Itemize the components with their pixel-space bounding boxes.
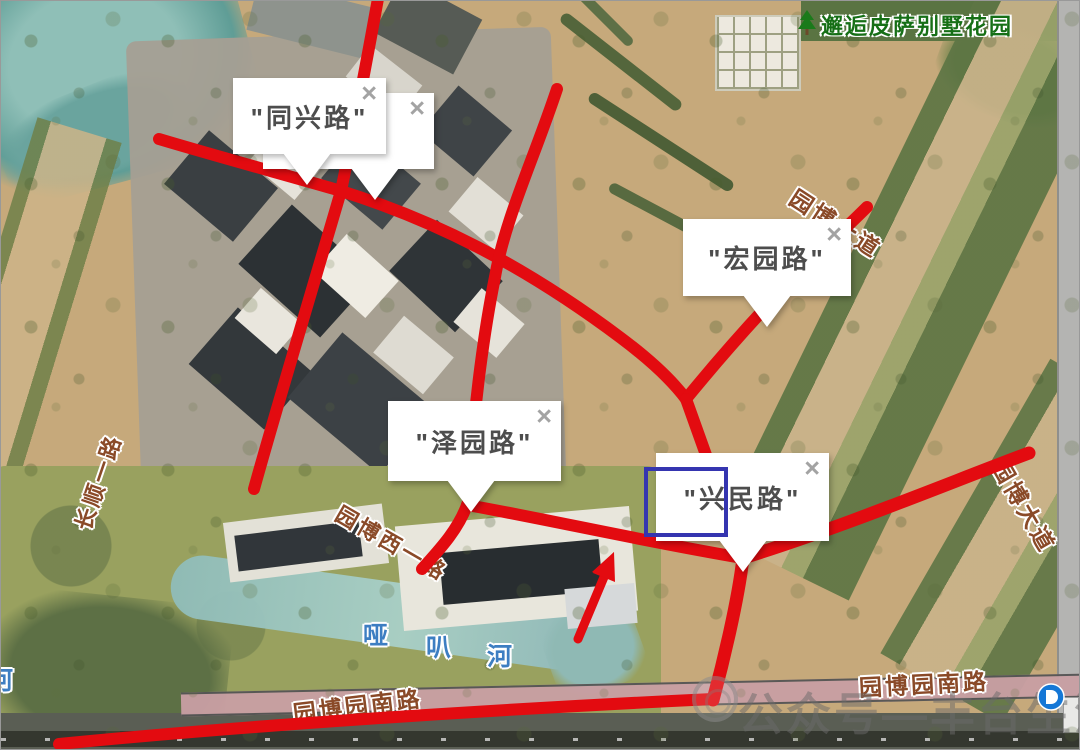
- river-label-char-he: 河: [487, 637, 515, 673]
- warehouse-yard: [564, 583, 637, 629]
- terrain-hedge: [586, 91, 735, 194]
- popup-label: "泽园路": [416, 423, 534, 460]
- terrain-railway: [1, 731, 1080, 747]
- popup-pointer: [719, 540, 767, 572]
- satellite-map[interactable]: 邂逅皮萨别墅花园 长顺一路 园博西一路 园博大道 园博大道 园博园南路 园博园南…: [0, 0, 1080, 750]
- poi-villa-garden: 邂逅皮萨别墅花园: [796, 9, 1013, 42]
- popup-zeyuan-road[interactable]: "泽园路" ×: [388, 401, 561, 481]
- terrain-grid-plot: [715, 15, 801, 91]
- red-route-south-link: [713, 558, 743, 700]
- edge-partial-label: 河: [0, 661, 16, 697]
- popup-label: "宏园路": [708, 239, 826, 276]
- river-label-char-ya: 哑: [363, 616, 391, 652]
- tree-icon: [796, 9, 818, 42]
- popup-pointer: [351, 168, 399, 200]
- road-label-yuanbo-nanlu-right: 园博园南路: [858, 662, 990, 703]
- terrain-edge-strip: [1057, 1, 1080, 750]
- popup-tongxing-road[interactable]: "同兴路" ×: [233, 78, 386, 154]
- roadside-sign: [1063, 697, 1079, 733]
- popup-pointer: [283, 153, 331, 185]
- popup-label: "同兴路": [251, 98, 369, 135]
- close-icon[interactable]: ×: [409, 95, 425, 122]
- popup-hongyuan-road[interactable]: "宏园路" ×: [683, 219, 851, 296]
- close-icon[interactable]: ×: [536, 403, 552, 430]
- close-icon[interactable]: ×: [826, 221, 842, 248]
- close-icon[interactable]: ×: [361, 80, 377, 107]
- poi-villa-garden-label: 邂逅皮萨别墅花园: [821, 9, 1013, 41]
- river-label-char-ba: 叭: [426, 628, 454, 664]
- popup-pointer: [743, 295, 791, 327]
- popup-pointer: [447, 480, 495, 512]
- highlight-rectangle: [644, 467, 728, 537]
- close-icon[interactable]: ×: [804, 455, 820, 482]
